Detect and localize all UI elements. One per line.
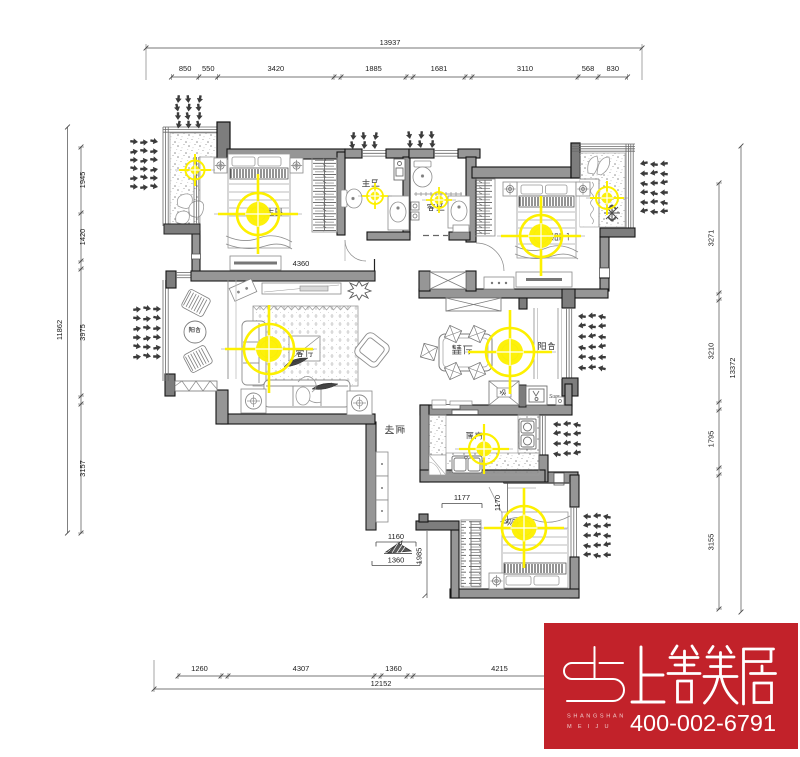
svg-text:13937: 13937	[380, 38, 401, 47]
svg-text:1260: 1260	[191, 664, 208, 673]
svg-text:4360: 4360	[293, 259, 310, 268]
svg-text:12152: 12152	[371, 679, 392, 688]
svg-text:1885: 1885	[365, 64, 382, 73]
svg-text:3155: 3155	[707, 534, 716, 551]
svg-text:400-002-6791: 400-002-6791	[630, 710, 776, 736]
svg-text:4307: 4307	[293, 664, 310, 673]
svg-text:568: 568	[582, 64, 595, 73]
svg-text:MEIJU: MEIJU	[567, 724, 615, 730]
svg-text:550: 550	[202, 64, 215, 73]
svg-text:3975: 3975	[78, 324, 87, 341]
svg-text:1170: 1170	[493, 495, 502, 511]
svg-text:1795: 1795	[707, 431, 716, 448]
svg-text:1681: 1681	[431, 64, 448, 73]
svg-text:3157: 3157	[78, 460, 87, 477]
svg-text:1177: 1177	[454, 493, 470, 502]
svg-text:850: 850	[179, 64, 192, 73]
svg-text:830: 830	[606, 64, 619, 73]
svg-text:1360: 1360	[385, 664, 402, 673]
svg-text:1985: 1985	[415, 548, 424, 565]
svg-text:3271: 3271	[707, 230, 716, 247]
svg-text:1160: 1160	[388, 532, 404, 541]
svg-text:SHANGSHAN: SHANGSHAN	[567, 714, 626, 720]
svg-text:1360: 1360	[388, 556, 405, 565]
svg-text:3110: 3110	[517, 64, 533, 73]
svg-text:4215: 4215	[491, 664, 508, 673]
svg-text:1945: 1945	[78, 172, 87, 189]
svg-text:3420: 3420	[268, 64, 285, 73]
svg-text:3210: 3210	[707, 343, 716, 360]
svg-text:1420: 1420	[78, 229, 87, 246]
svg-text:11862: 11862	[55, 320, 64, 340]
svg-text:13372: 13372	[728, 358, 737, 379]
